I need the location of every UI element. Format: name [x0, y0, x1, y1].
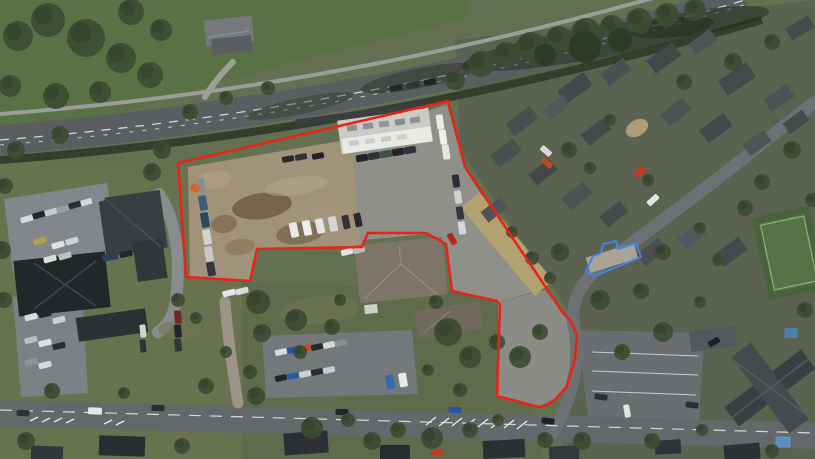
aerial-site-screenshot: [0, 0, 815, 459]
aerial-photo: [0, 0, 815, 459]
